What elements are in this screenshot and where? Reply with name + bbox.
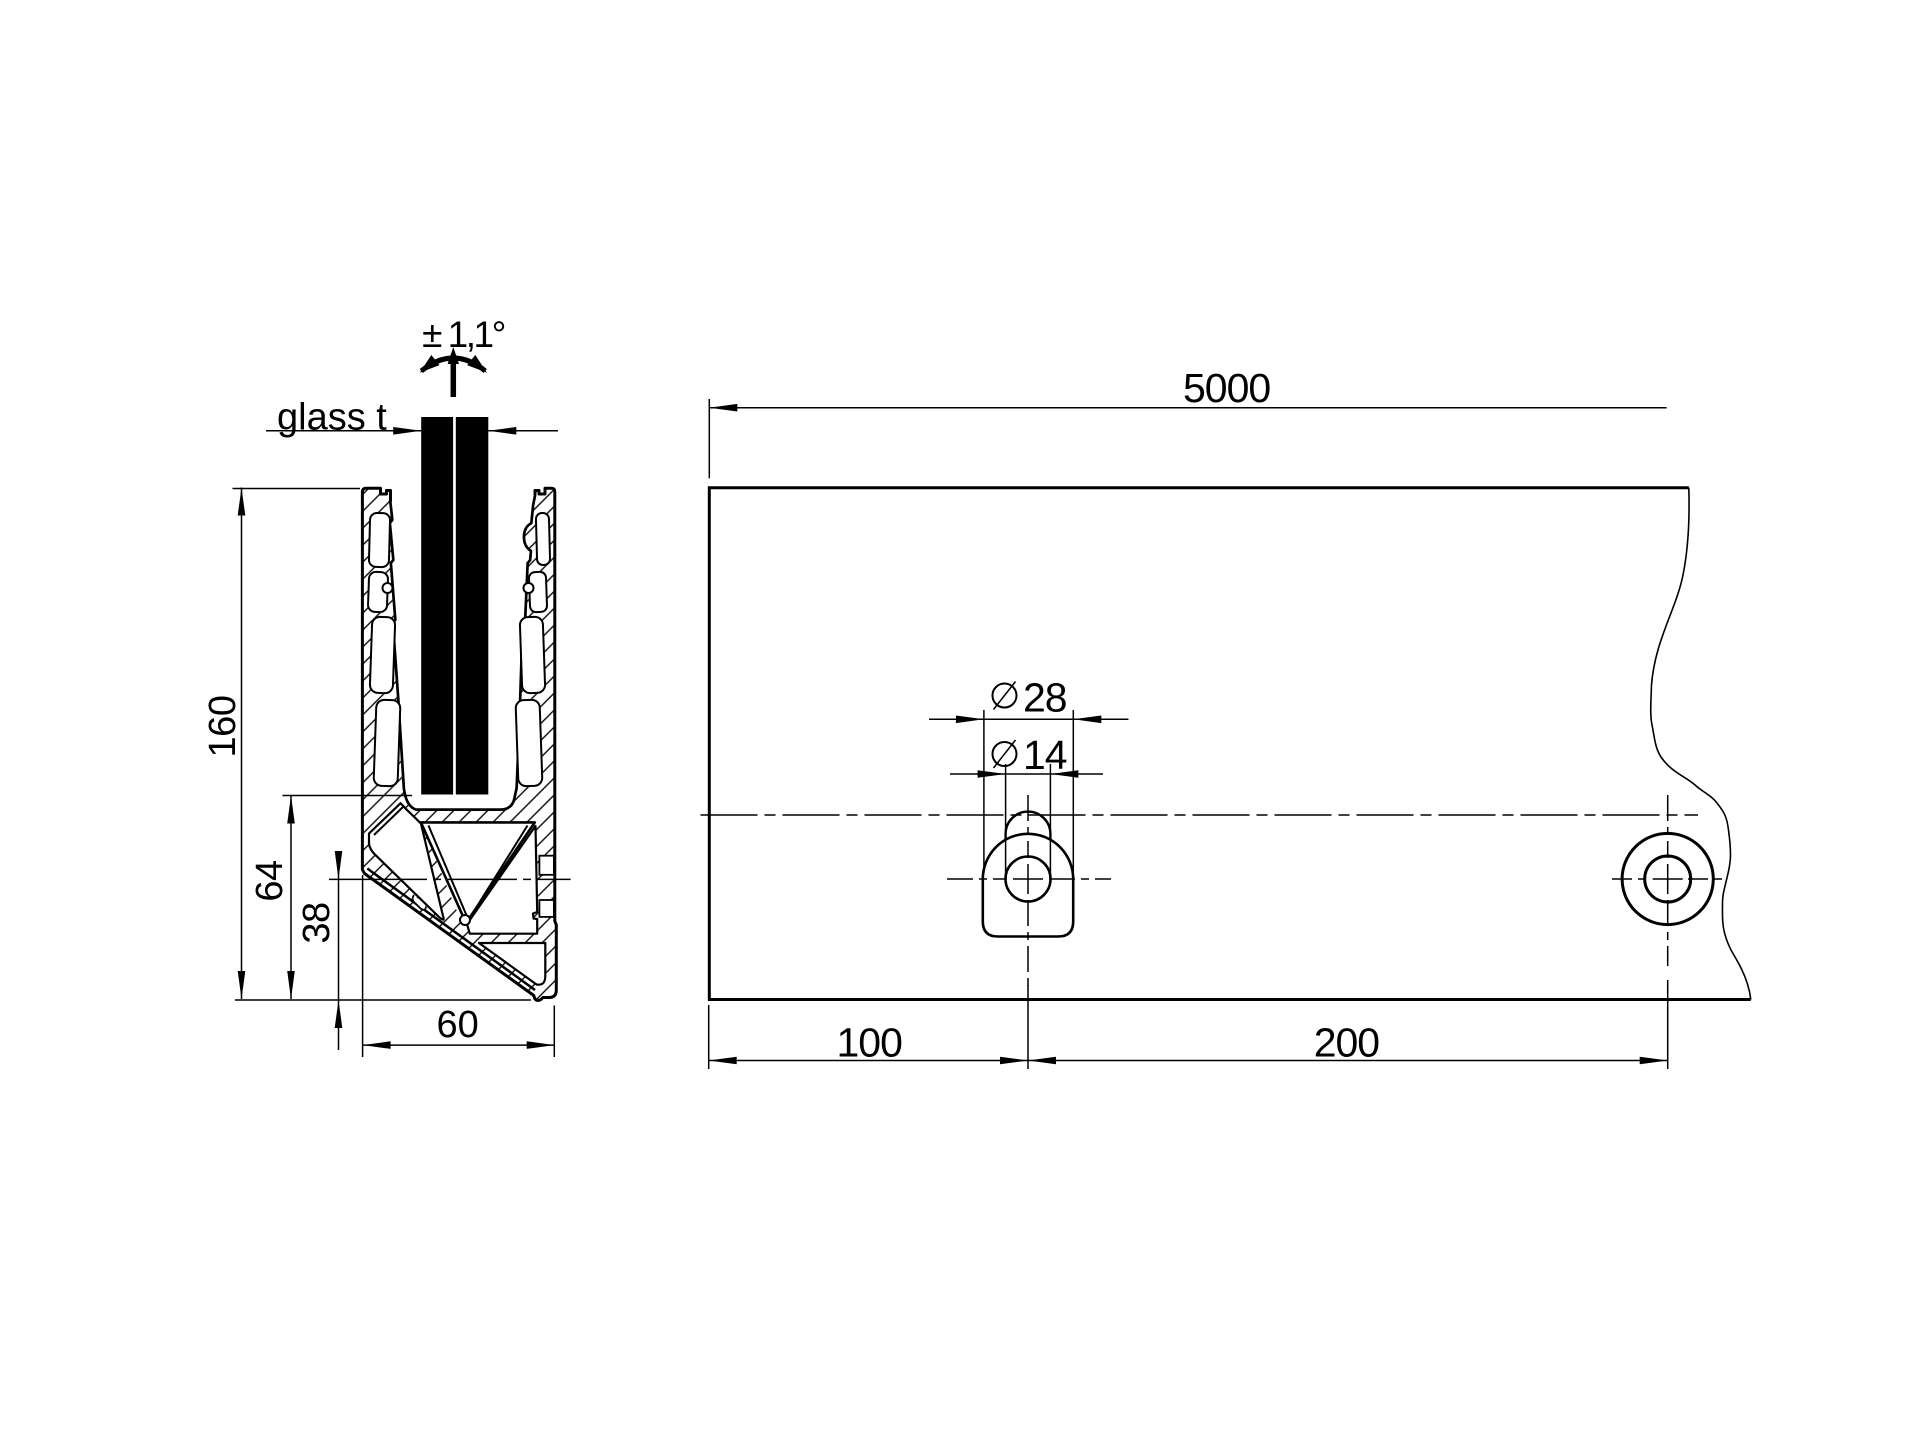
svg-text:± 1,1°: ± 1,1°	[422, 314, 505, 355]
svg-text:38: 38	[296, 902, 338, 943]
svg-text:14: 14	[1023, 732, 1067, 778]
svg-text:glass t: glass t	[277, 397, 387, 439]
svg-text:200: 200	[1314, 1020, 1380, 1066]
svg-text:100: 100	[836, 1020, 902, 1066]
svg-text:28: 28	[1023, 675, 1067, 721]
svg-text:160: 160	[202, 696, 244, 758]
svg-text:64: 64	[249, 860, 291, 902]
svg-text:5000: 5000	[1183, 365, 1270, 411]
svg-text:60: 60	[436, 1004, 478, 1046]
